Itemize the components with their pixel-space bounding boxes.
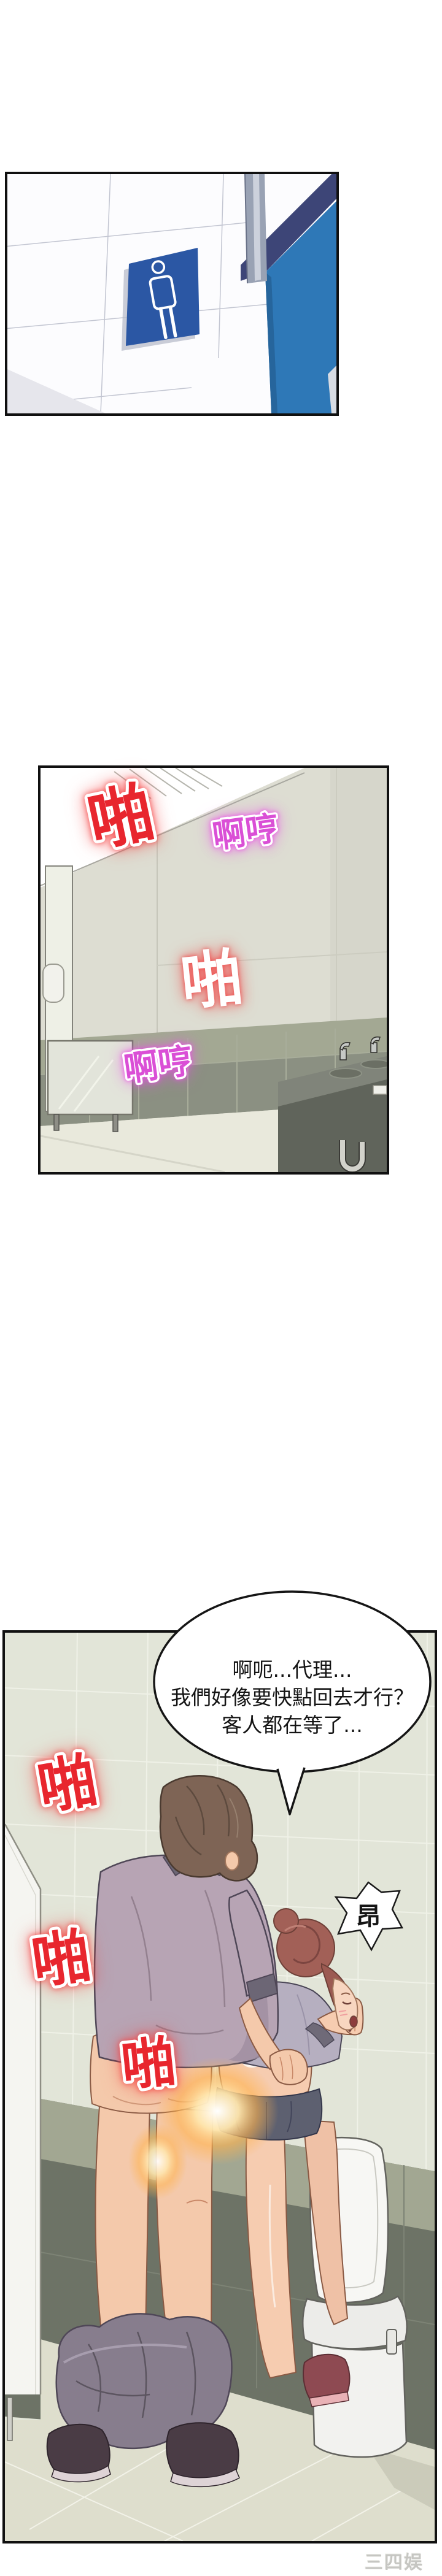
urinal	[43, 964, 64, 1002]
censor-glow-2	[128, 2123, 187, 2199]
flush-button	[387, 2329, 397, 2354]
wall-shade	[330, 768, 387, 1025]
panel-bathroom-wide	[38, 765, 389, 1175]
glass-partition	[48, 1041, 133, 1114]
woman-mouth	[350, 2016, 357, 2027]
panel-couple-scene	[2, 1630, 437, 2543]
partition-foot	[54, 1114, 59, 1130]
woman-shoe	[303, 2355, 349, 2398]
wall-pipe	[7, 2398, 12, 2440]
watermark: 三四娱乐	[365, 2547, 442, 2576]
partition-foot-2	[113, 1114, 118, 1132]
restroom-sign-scene	[7, 174, 336, 413]
bathroom-scene	[41, 768, 387, 1172]
towel	[373, 1086, 387, 1094]
sink-bowl	[330, 1068, 362, 1078]
couple-scene	[5, 1633, 435, 2541]
sink-bowl-2	[361, 1060, 387, 1068]
man-ear	[225, 1852, 239, 1870]
man-shoe-left	[47, 2425, 110, 2475]
man-shoe-right	[166, 2423, 238, 2480]
comic-page: 啊呃...代理... 我們好像要快點回去才行？ 客人都在等了... 啪 啊哼 啪…	[0, 0, 442, 2576]
panel-restroom-sign	[5, 172, 339, 416]
